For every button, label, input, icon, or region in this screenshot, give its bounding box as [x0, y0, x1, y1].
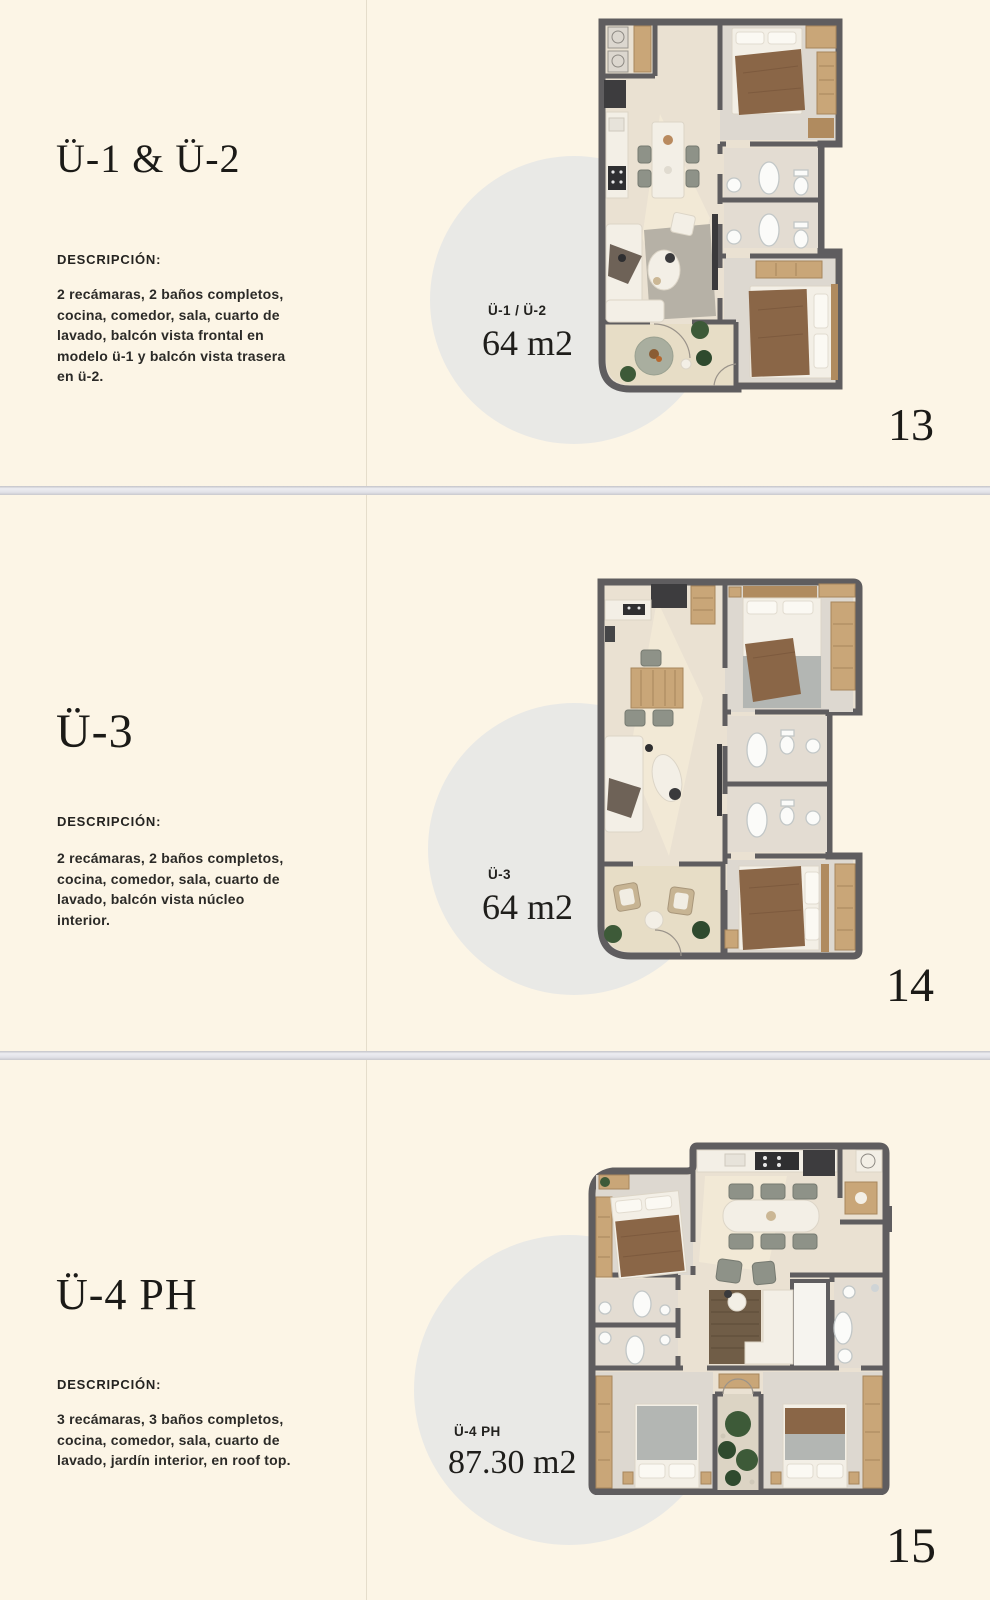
unit-area: 64 m2 — [482, 325, 573, 361]
unit-title: Ü-3 — [56, 708, 134, 756]
description-heading: DESCRIPCIÓN: — [57, 814, 161, 829]
brochure-page: { "colors": { "background": "#fbf4e5", "… — [0, 0, 990, 1600]
description-text: 3 recámaras, 3 baños completos, cocina, … — [57, 1409, 362, 1471]
page-number: 14 — [886, 962, 934, 1010]
unit-area-label: Ü-3 64 m2 — [482, 867, 573, 925]
unit-area-label: Ü-1 / Ü-2 64 m2 — [482, 303, 573, 361]
dining-area — [723, 1184, 819, 1249]
column-divider-line — [366, 495, 367, 1051]
column-divider-line — [366, 1060, 367, 1600]
unit-label: Ü-3 — [482, 867, 573, 882]
panel-unit-u4-ph: Ü-4 PH DESCRIPCIÓN: 3 recámaras, 3 baños… — [0, 1060, 990, 1600]
unit-area: 87.30 m2 — [448, 1446, 576, 1480]
page-number: 15 — [886, 1520, 936, 1570]
unit-area-label: Ü-4 PH 87.30 m2 — [448, 1424, 576, 1480]
panel-unit-u3: Ü-3 DESCRIPCIÓN: 2 recámaras, 2 baños co… — [0, 495, 990, 1051]
unit-area: 64 m2 — [482, 889, 573, 925]
section-divider — [0, 486, 990, 495]
page-number: 13 — [888, 402, 934, 448]
floor-plan-u4-ph — [587, 1142, 893, 1495]
floor-plan-u1-u2 — [598, 18, 843, 401]
tv-console — [712, 214, 718, 290]
living-area — [606, 212, 718, 322]
description-text: 2 recámaras, 2 baños completos, cocina, … — [57, 848, 362, 930]
unit-label: Ü-4 PH — [448, 1424, 576, 1439]
unit-title: Ü-4 PH — [56, 1273, 198, 1317]
bedroom-2-area — [725, 864, 855, 952]
description-heading: DESCRIPCIÓN: — [57, 252, 161, 267]
unit-title: Ü-1 & Ü-2 — [56, 139, 241, 179]
column-divider-line — [366, 0, 367, 486]
tv-console — [717, 744, 722, 816]
description-heading: DESCRIPCIÓN: — [57, 1377, 161, 1392]
bedroom-1-area — [729, 584, 855, 708]
description-text: 2 recámaras, 2 baños completos, cocina, … — [57, 284, 362, 387]
section-divider — [0, 1051, 990, 1060]
panel-unit-u1-u2: Ü-1 & Ü-2 DESCRIPCIÓN: 2 recámaras, 2 ba… — [0, 0, 990, 486]
unit-label: Ü-1 / Ü-2 — [482, 303, 573, 318]
floor-plan-u3 — [597, 578, 863, 960]
